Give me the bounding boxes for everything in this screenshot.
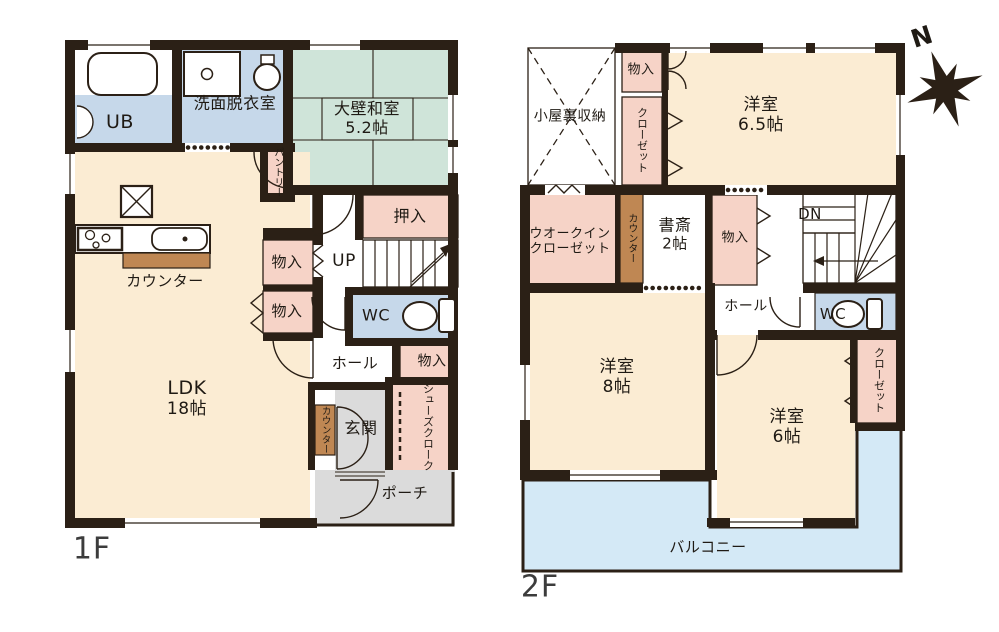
dotted-walls — [185, 143, 230, 152]
room-label-washitsu: 大壁和室 5.2帖 — [334, 100, 400, 138]
room-label-attic: 小屋裏収納 — [534, 109, 607, 126]
room-label-ldk: LDK 18帖 — [167, 377, 207, 419]
bathtub-icon — [88, 53, 157, 95]
room-label-porch: ポーチ — [382, 485, 429, 503]
room-label-balcony: バルコニー — [669, 539, 746, 557]
washer-icon — [184, 52, 240, 96]
room-label-ub: UB — [106, 111, 134, 133]
room-label-wc-2f: WC — [820, 306, 846, 324]
room-label-genkan: 玄関 — [344, 420, 377, 439]
stairs-up-label: UP — [332, 251, 356, 271]
room-label-wc: WC — [362, 307, 390, 326]
kitchen-counter-label: カウンター — [126, 273, 204, 291]
room-label-monoire-b: 物入 — [271, 303, 302, 321]
room-label-monoire-mid: 物入 — [721, 230, 748, 245]
room-label-hall-2f: ホール — [724, 299, 768, 316]
room-label-closet-se: クローゼット — [872, 347, 885, 413]
floorplan-page: UB 洗面脱衣室 大壁和室 5.2帖 パントリー 押入 UP 物入 物入 WC … — [0, 0, 999, 632]
floor-label-1f: 1F — [73, 531, 111, 566]
floor2-plan: 小屋裏収納 物入 クローゼット 洋室 6.5帖 ウオークイン クローゼット カウ… — [510, 35, 905, 620]
floor-label-2f: 2F — [521, 569, 559, 604]
room-label-monoire-c: 物入 — [418, 354, 447, 371]
counter-label-2f: カウンター — [625, 213, 637, 263]
compass: N — [893, 15, 997, 135]
stairs-down-label: DN — [798, 206, 822, 224]
room-label-monoire-top: 物入 — [627, 62, 654, 77]
room-label-oshiire: 押入 — [393, 208, 426, 227]
room-label-monoire-a: 物入 — [271, 254, 302, 272]
room-label-closet-top: クローゼット — [635, 107, 648, 173]
room-label-shosai: 書斎 2帖 — [658, 217, 691, 254]
room-label-shoes-cloak: シューズクローク — [421, 383, 434, 471]
entry-counter-label: カウンター — [319, 406, 330, 454]
room-label-yoshitsu-6: 洋室 6帖 — [770, 407, 805, 447]
room-label-senmen: 洗面脱衣室 — [194, 95, 277, 114]
toilet-icon — [403, 299, 455, 332]
room-label-pantry: パントリー — [271, 147, 283, 197]
room-label-hall: ホール — [332, 355, 379, 373]
room-label-yoshitsu-8: 洋室 8帖 — [600, 357, 635, 397]
room-label-yoshitsu-65: 洋室 6.5帖 — [738, 95, 784, 135]
room-label-wic: ウオークイン クローゼット — [529, 227, 610, 258]
pillar-icon — [121, 186, 152, 217]
floor1-plan: UB 洗面脱衣室 大壁和室 5.2帖 パントリー 押入 UP 物入 物入 WC … — [60, 32, 465, 537]
